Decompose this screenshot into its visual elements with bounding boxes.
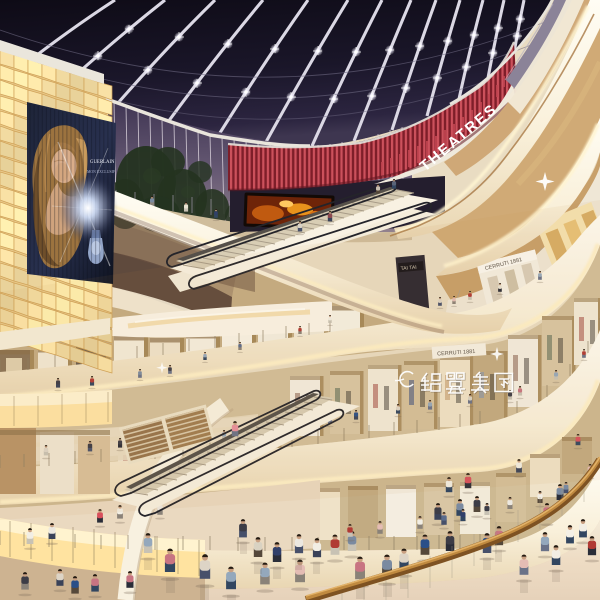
svg-text:GUERLAIN: GUERLAIN bbox=[90, 160, 115, 165]
svg-text:MON EXCLUSIF: MON EXCLUSIF bbox=[87, 170, 115, 174]
